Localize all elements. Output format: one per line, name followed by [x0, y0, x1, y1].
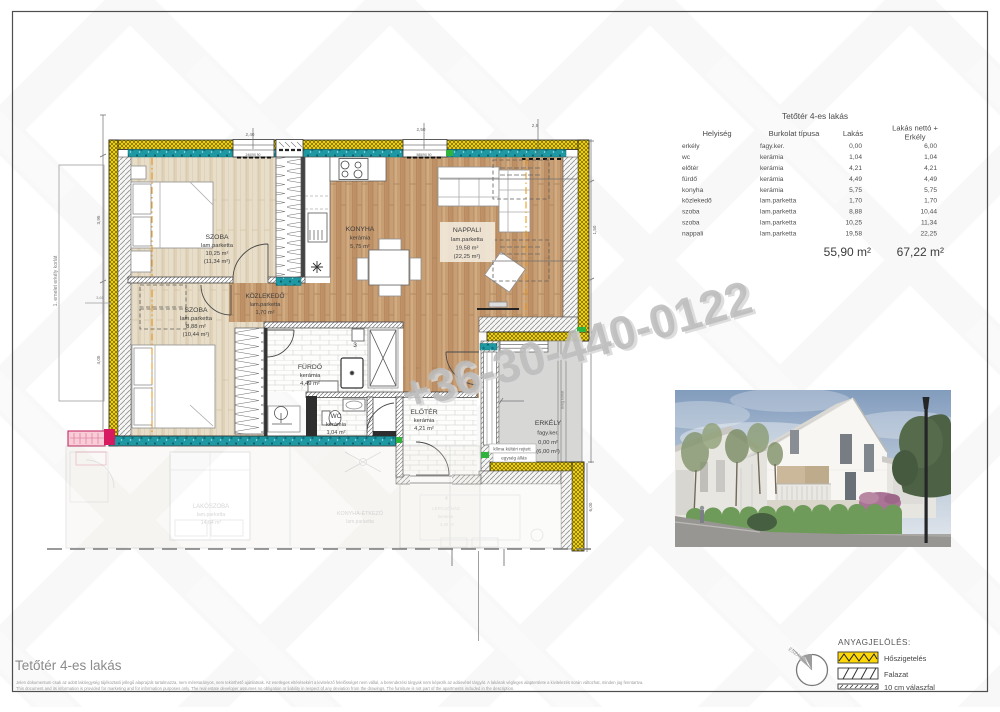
svg-text:8,88 m²: 8,88 m²	[186, 324, 206, 330]
svg-text:0,00: 0,00	[849, 143, 862, 150]
svg-text:4,49 m²: 4,49 m²	[300, 381, 320, 387]
svg-text:4,21: 4,21	[924, 165, 937, 172]
svg-text:kerámia: kerámia	[350, 236, 371, 242]
svg-text:lam.parketta: lam.parketta	[250, 302, 282, 308]
svg-text:19,58: 19,58	[845, 231, 862, 238]
svg-text:4,21 m²: 4,21 m²	[414, 426, 434, 432]
svg-text:1,04: 1,04	[849, 154, 862, 161]
svg-text:55,90 m²: 55,90 m²	[824, 245, 871, 259]
svg-text:Tetőtér 4-es lakás: Tetőtér 4-es lakás	[782, 111, 848, 121]
svg-text:5,75: 5,75	[849, 187, 862, 194]
svg-text:lam.parketta: lam.parketta	[760, 220, 797, 227]
svg-text:10,25 m²: 10,25 m²	[206, 251, 229, 257]
svg-text:szoba: szoba	[682, 220, 700, 227]
svg-text:(6,00 m²): (6,00 m²)	[536, 449, 560, 455]
svg-text:nappali: nappali	[682, 231, 704, 238]
svg-text:14,64 m²: 14,64 m²	[201, 520, 222, 526]
svg-text:(10,44 m²): (10,44 m²)	[183, 332, 210, 338]
svg-text:lam.parketta: lam.parketta	[760, 198, 797, 205]
svg-text:67,22 m²: 67,22 m²	[897, 245, 944, 259]
svg-text:kerámia: kerámia	[760, 165, 784, 172]
svg-text:KONYHA-ÉTKEZŐ: KONYHA-ÉTKEZŐ	[337, 510, 383, 517]
svg-text:üveg korlát: üveg korlát	[561, 390, 565, 410]
svg-text:fürdő: fürdő	[682, 176, 697, 183]
svg-text:SZOBA: SZOBA	[184, 307, 208, 314]
svg-text:1,50: 1,50	[592, 225, 597, 234]
svg-text:1,70 m²: 1,70 m²	[256, 310, 275, 316]
svg-text:KONYHA: KONYHA	[346, 226, 375, 233]
svg-text:klíma kültéri rejtett: klíma kültéri rejtett	[493, 447, 531, 452]
svg-text:Helyiség: Helyiség	[702, 129, 731, 138]
svg-text:szoba: szoba	[682, 209, 700, 216]
svg-text:10,44: 10,44	[920, 209, 937, 216]
svg-text:1,70: 1,70	[924, 198, 937, 205]
svg-text:NAPPALI: NAPPALI	[453, 227, 481, 234]
svg-text:fagy.ker.: fagy.ker.	[760, 143, 785, 150]
svg-text:(22,25 m²): (22,25 m²)	[454, 254, 481, 260]
svg-text:2,40: 2,40	[246, 132, 255, 137]
svg-text:kerámia: kerámia	[326, 422, 347, 428]
svg-text:konyha: konyha	[682, 187, 704, 194]
svg-text:lam.parketta: lam.parketta	[180, 316, 213, 322]
svg-text:lam.parketta: lam.parketta	[201, 243, 234, 249]
svg-text:This document and its informat: This document and its information is pro…	[16, 686, 514, 691]
svg-text:1. emelet erkély korlát: 1. emelet erkély korlát	[53, 255, 59, 306]
svg-text:KÖZLEKEDŐ: KÖZLEKEDŐ	[245, 291, 284, 300]
svg-text:ANYAGJELÖLÉS:: ANYAGJELÖLÉS:	[838, 637, 911, 647]
svg-text:Tetőtér 4-es lakás: Tetőtér 4-es lakás	[15, 658, 122, 673]
svg-text:Jelen dokumentum csak az adott: Jelen dokumentum csak az adott lakóegysé…	[16, 680, 643, 685]
svg-text:6,00: 6,00	[924, 143, 937, 150]
svg-text:lam.parketta: lam.parketta	[760, 231, 797, 238]
svg-text:10 cm válaszfal: 10 cm válaszfal	[884, 683, 935, 692]
svg-text:lam.parketta: lam.parketta	[760, 209, 797, 216]
svg-text:kerámia: kerámia	[300, 373, 321, 379]
svg-text:5,75 m²: 5,75 m²	[350, 244, 370, 250]
svg-text:4,49: 4,49	[849, 176, 862, 183]
svg-text:1,70: 1,70	[849, 198, 862, 205]
svg-text:(11,34 m²): (11,34 m²)	[204, 259, 230, 265]
svg-text:2,5: 2,5	[532, 123, 539, 128]
svg-text:4,21: 4,21	[849, 165, 862, 172]
svg-text:3,95: 3,95	[96, 215, 101, 224]
svg-text:kerámia: kerámia	[438, 514, 454, 519]
svg-text:fagy.ker.: fagy.ker.	[537, 431, 559, 437]
svg-text:Falazat: Falazat	[884, 670, 908, 679]
svg-text:WC: WC	[331, 413, 342, 420]
svg-text:kerámia: kerámia	[760, 176, 784, 183]
svg-text:egység állás: egység állás	[501, 456, 527, 461]
svg-text:5,75: 5,75	[924, 187, 937, 194]
svg-text:1,04: 1,04	[924, 154, 937, 161]
svg-text:585/90 90: 585/90 90	[416, 153, 431, 157]
svg-text:LÉPCSŐHÁZ: LÉPCSŐHÁZ	[432, 505, 460, 511]
svg-text:4: 4	[445, 496, 448, 502]
svg-text:3: 3	[353, 342, 357, 349]
svg-text:4,40 m²: 4,40 m²	[440, 522, 455, 527]
svg-text:0,00 m²: 0,00 m²	[538, 440, 558, 446]
svg-text:3,65: 3,65	[96, 295, 105, 300]
svg-text:2,50: 2,50	[417, 127, 426, 132]
svg-text:FÜRDŐ: FÜRDŐ	[298, 362, 322, 371]
svg-text:lam.parketta: lam.parketta	[451, 237, 484, 243]
svg-text:LAKÓSZOBA: LAKÓSZOBA	[193, 503, 229, 510]
svg-text:wc: wc	[681, 154, 691, 161]
svg-text:ERKÉLY: ERKÉLY	[535, 418, 562, 427]
svg-text:előtér: előtér	[682, 165, 699, 172]
svg-text:11,34: 11,34	[921, 220, 937, 227]
svg-text:4,05: 4,05	[96, 355, 101, 364]
svg-text:kerámia: kerámia	[760, 187, 784, 194]
svg-text:8,88: 8,88	[849, 209, 862, 216]
svg-text:lam.parketta: lam.parketta	[346, 519, 374, 525]
svg-text:erkély: erkély	[682, 143, 700, 150]
svg-text:közlekedő: közlekedő	[682, 198, 712, 205]
svg-text:Lakás: Lakás	[843, 129, 863, 138]
svg-text:kerámia: kerámia	[760, 154, 784, 161]
svg-text:19,58 m²: 19,58 m²	[456, 246, 479, 252]
svg-text:Lakás nettó +: Lakás nettó +	[892, 124, 938, 133]
svg-text:6,00: 6,00	[588, 502, 593, 511]
svg-text:240/90 90: 240/90 90	[245, 153, 260, 157]
svg-text:SZOBA: SZOBA	[205, 234, 229, 241]
svg-text:22,25: 22,25	[920, 231, 937, 238]
svg-text:Hőszigetelés: Hőszigetelés	[884, 654, 927, 663]
svg-text:4,49: 4,49	[924, 176, 937, 183]
svg-text:Erkély: Erkély	[904, 133, 925, 142]
svg-text:1,04 m²: 1,04 m²	[327, 430, 346, 436]
svg-text:Burkolat típusa: Burkolat típusa	[769, 129, 820, 138]
svg-text:lam.parketta: lam.parketta	[197, 512, 226, 518]
svg-text:10,25: 10,25	[845, 220, 862, 227]
